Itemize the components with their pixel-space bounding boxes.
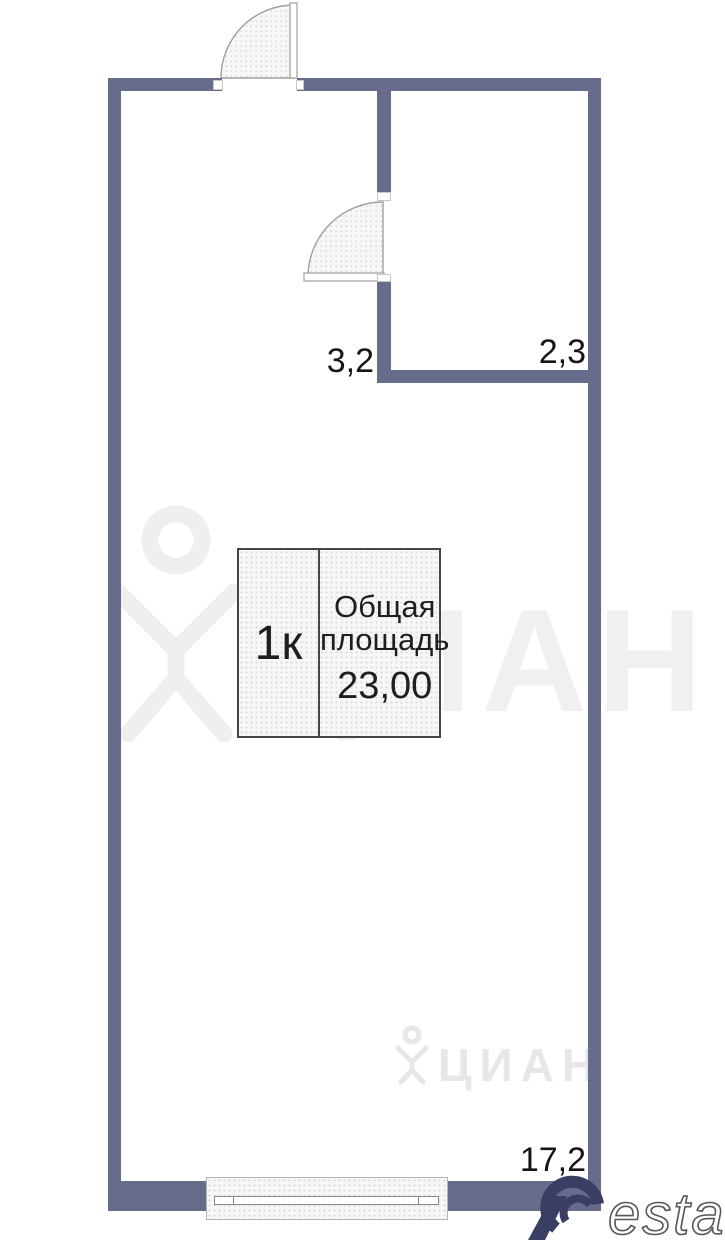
area-title-line1: Общая: [334, 590, 435, 623]
entrance-door-icon: [215, 0, 305, 80]
window-glass-line: [214, 1196, 439, 1205]
hall-area-label: 3,2: [308, 344, 374, 378]
partition-wall-upper: [377, 91, 391, 200]
entrance-door-jamb-left: [213, 80, 223, 90]
partition-wall-lower: [377, 275, 391, 383]
legend-box: 1к Общая площадь 23,00: [237, 548, 441, 738]
cian-pin-small-icon: [392, 1024, 432, 1086]
wall-right: [588, 78, 601, 1211]
room-type-label: 1к: [239, 550, 320, 736]
restate-logo: estate: [520, 1158, 725, 1243]
floorplan: ЦИАН ЦИАН: [0, 0, 725, 1243]
total-area-value: 23,00: [337, 670, 432, 703]
area-title-line2: площадь: [320, 623, 449, 656]
window: [206, 1177, 448, 1220]
total-area-block: Общая площадь 23,00: [320, 550, 449, 736]
interior-door-icon: [300, 195, 395, 283]
interior-door-jamb-top: [377, 192, 391, 201]
wall-left: [108, 78, 121, 1211]
restate-wordmark: estate: [608, 1182, 725, 1243]
interior-door-jamb-bottom: [377, 274, 391, 282]
wall-top-left-segment: [108, 78, 222, 91]
interior-wall-horizontal: [377, 370, 601, 383]
wall-top-right-segment: [297, 78, 601, 91]
bathroom-area-label: 2,3: [520, 335, 586, 369]
cian-watermark-small-text: ЦИАН: [438, 1042, 603, 1088]
entrance-door-jamb-right: [296, 80, 304, 90]
